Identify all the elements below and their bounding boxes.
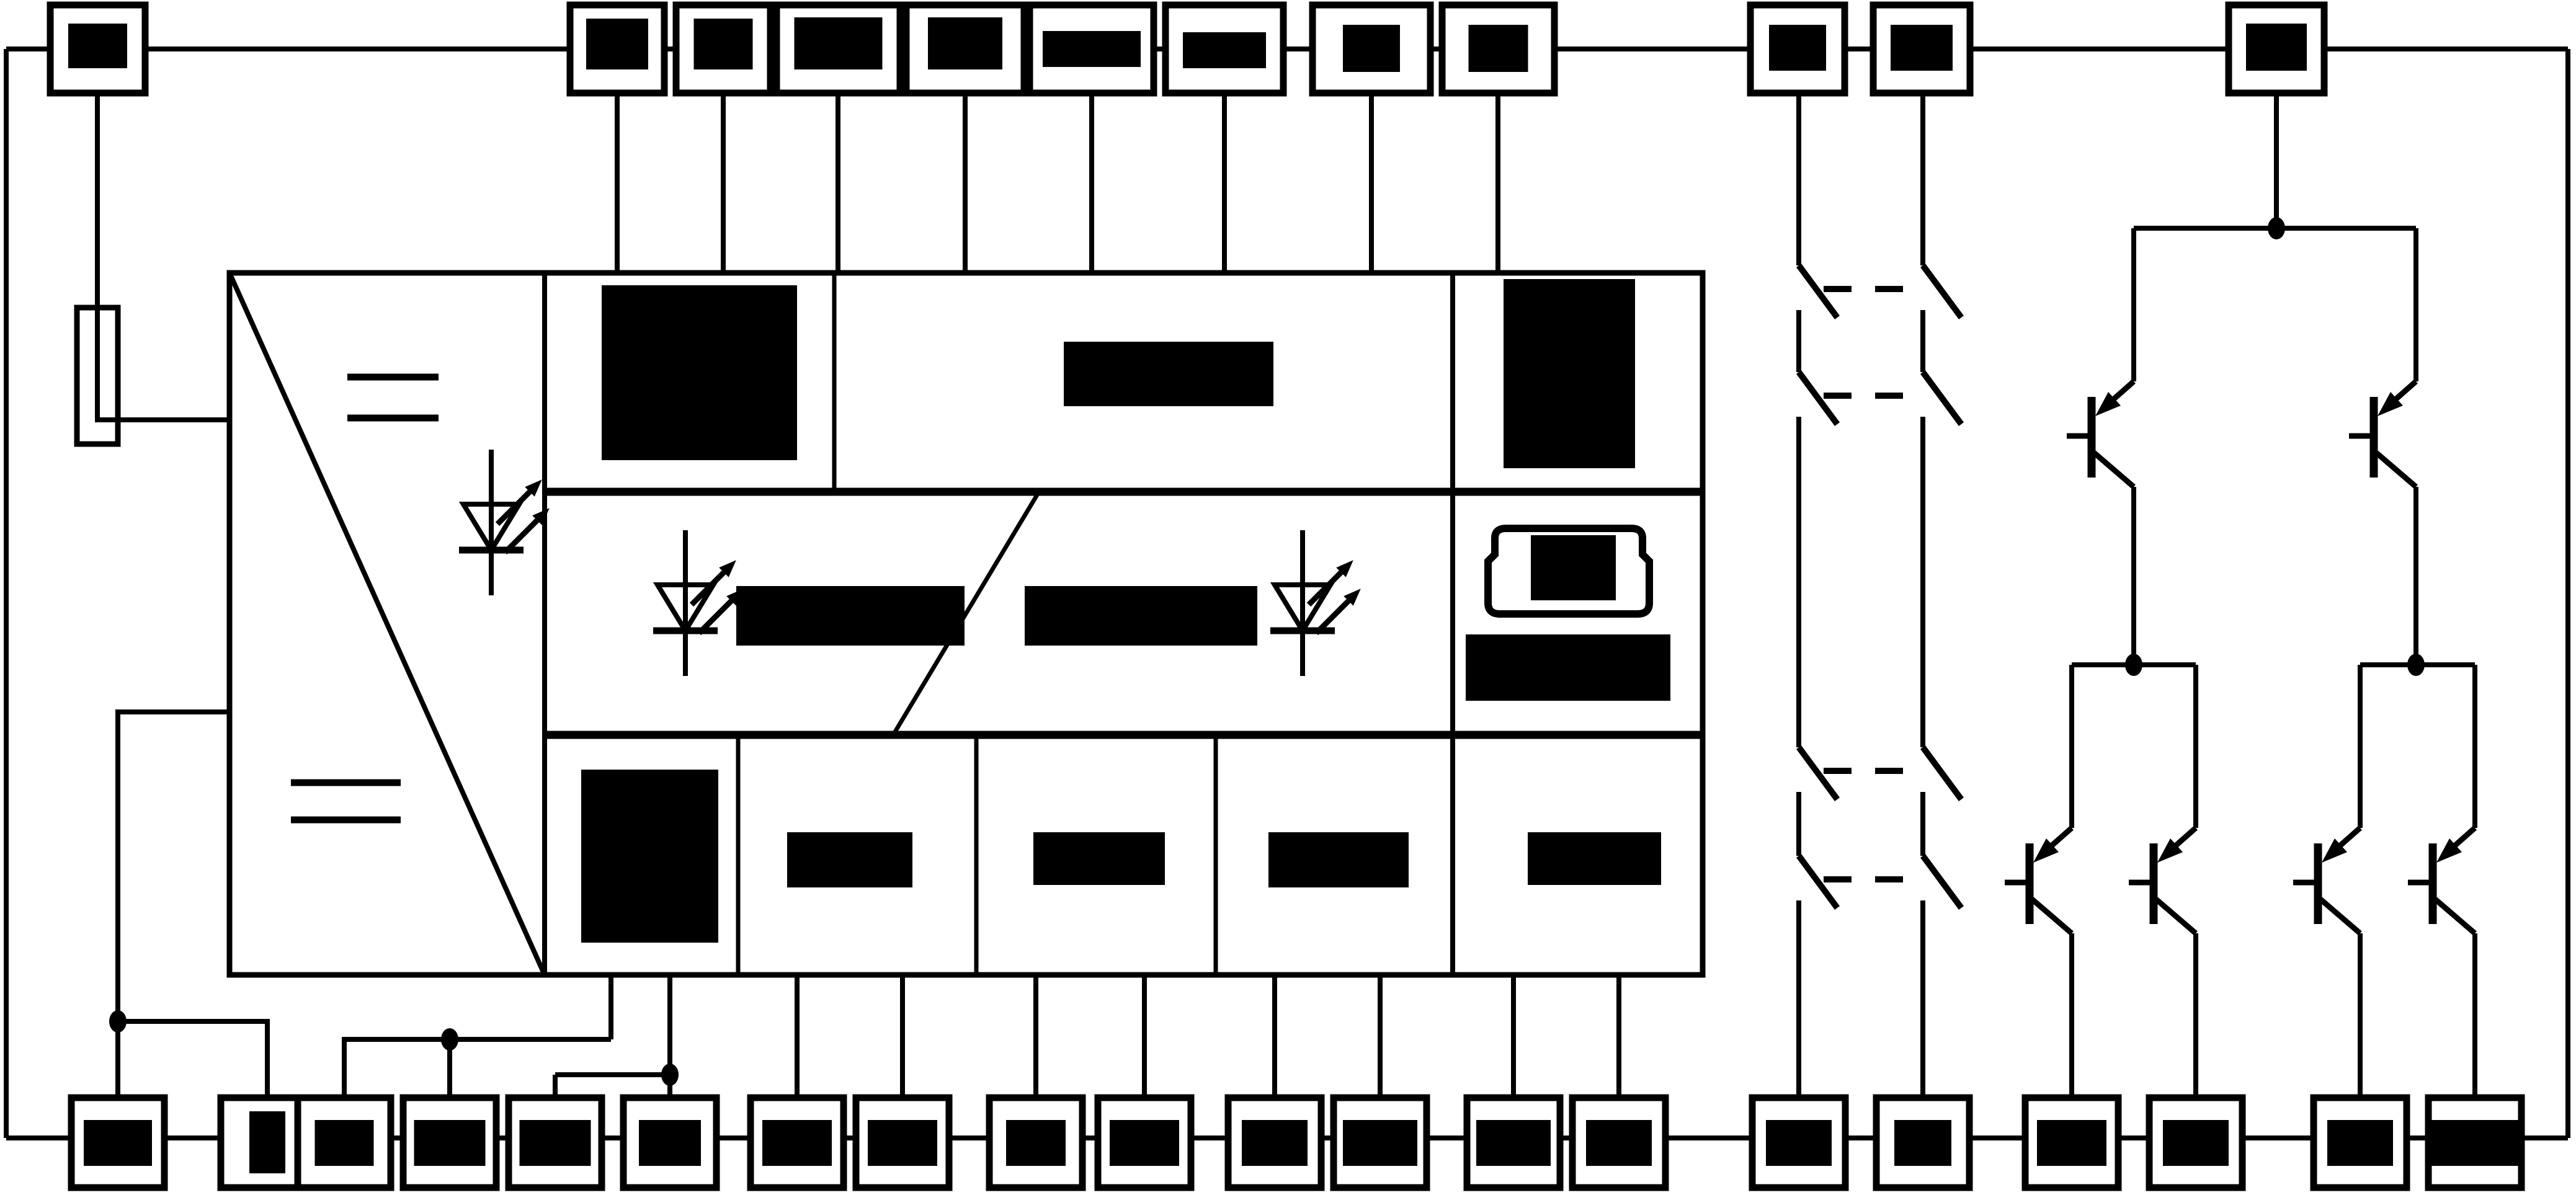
led-icon-converter: [459, 450, 550, 595]
pin-bottom-6-redacted-label: [639, 1120, 701, 1166]
pin-bottom-19-redacted-label: [2327, 1120, 2393, 1166]
pnp-transistor-bottom-4: [2408, 828, 2475, 933]
bottom-staggered-wires: [344, 975, 670, 1098]
pin-top-6-redacted-label: [1183, 32, 1266, 68]
switch-column-1: [1799, 93, 1837, 1098]
pin-bottom-10-redacted-label: [1110, 1120, 1179, 1166]
led-icon-middle-left: [653, 530, 744, 676]
junction-dot: [2407, 654, 2425, 676]
pin-top-1-redacted-label: [586, 19, 648, 69]
led-emission-arrow-1: [692, 572, 724, 605]
switch-column-2: [1923, 93, 1961, 1098]
block-diagram-canvas: [0, 0, 2576, 1200]
dc-symbol-upper: [347, 377, 439, 418]
pin-bottom-3-redacted-label: [315, 1120, 374, 1166]
label-middle-row-left: [736, 586, 965, 646]
pin-bottom-4-redacted-label: [414, 1120, 486, 1166]
pnp-transistor-bottom-2: [2129, 828, 2196, 933]
label-subblock-top-1: [602, 285, 797, 460]
transistor-collector: [2376, 453, 2416, 487]
pin-bottom-8-redacted-label: [868, 1120, 937, 1166]
pin-top-10-redacted-label: [1891, 25, 1953, 71]
label-bottom-col-4: [1268, 832, 1409, 887]
switch-blade: [1923, 265, 1961, 318]
top-pin-drop-wires: [617, 93, 1498, 273]
label-bottom-col-3: [1033, 832, 1165, 885]
led-emission-arrow-1: [497, 492, 530, 524]
pnp-transistor-bottom-3: [2293, 828, 2360, 933]
switch-blade: [1923, 856, 1961, 908]
transistor-icons-layer: [2005, 381, 2475, 933]
pin-top-8-redacted-label: [1469, 25, 1528, 72]
ganged-switch-icons: [1799, 93, 1961, 1098]
label-right-column-middle: [1466, 634, 1670, 701]
transistor-emitter: [2113, 381, 2134, 400]
pin-top-5-redacted-label: [1043, 31, 1141, 67]
pin-bottom-15-redacted-label: [1766, 1120, 1832, 1166]
transistor-emitter: [2175, 828, 2196, 847]
switch-blade: [1923, 747, 1961, 799]
pin-boxes-layer: [50, 5, 2521, 1188]
main-block-group: [230, 273, 1703, 975]
transistor-collector: [2032, 899, 2072, 933]
bottom-drop-wires: [797, 975, 1619, 1098]
pin-bottom-2-redacted-label: [249, 1111, 285, 1173]
transistor-collector: [2156, 899, 2196, 933]
pin-bottom-17-redacted-label: [2037, 1120, 2106, 1166]
pin-bottom-13-redacted-label: [1476, 1120, 1551, 1166]
pin-bottom-14-redacted-label: [1586, 1120, 1652, 1166]
label-bottom-col-1: [581, 770, 718, 943]
junction-dot: [109, 1010, 127, 1033]
pin-top-left-corner-redacted-label: [68, 24, 127, 68]
label-chip-icon-inner: [1531, 535, 1616, 600]
pin-bottom-11-redacted-label: [1242, 1120, 1308, 1166]
label-middle-row-right: [1025, 586, 1257, 646]
junction-dot: [2125, 654, 2142, 676]
pin-bottom-20-redacted-label: [2431, 1120, 2518, 1166]
pin-bottom-7-redacted-label: [762, 1120, 832, 1166]
pin-top-11-redacted-label: [2246, 24, 2307, 71]
transistor-collector: [2094, 453, 2134, 487]
switch-blade: [1923, 372, 1961, 424]
redacted-labels-layer: [68, 17, 2518, 1173]
label-subblock-top-2: [1064, 342, 1273, 406]
junction-dot: [661, 1064, 679, 1086]
pin-top-2-redacted-label: [694, 19, 753, 69]
pnp-transistor-bottom-1: [2005, 828, 2072, 933]
transistor-emitter: [2339, 828, 2360, 847]
pin-bottom-1-redacted-label: [84, 1120, 152, 1166]
junction-dot: [2268, 217, 2285, 239]
label-bottom-col-5: [1528, 832, 1661, 885]
junction-dot: [441, 1028, 458, 1051]
transistor-emitter: [2454, 828, 2475, 847]
pin-top-7-redacted-label: [1343, 25, 1400, 72]
diagram-page: [0, 0, 2576, 1200]
led-emission-arrow-1: [1309, 572, 1341, 605]
main-block-outline: [230, 273, 1703, 975]
converter-return-wire: [118, 712, 267, 1098]
transistor-collector: [2320, 899, 2360, 933]
led-icon-middle-right: [1270, 530, 1361, 676]
pin-top-4-redacted-label: [928, 17, 1002, 69]
transistor-tree-wires: [2072, 93, 2475, 1098]
transistor-collector: [2435, 899, 2475, 933]
label-bottom-col-2: [787, 832, 912, 887]
transistor-emitter: [2051, 828, 2072, 847]
pin-bottom-9-redacted-label: [1006, 1120, 1066, 1166]
pin-bottom-16-redacted-label: [1894, 1120, 1951, 1166]
pin-bottom-5-redacted-label: [520, 1120, 591, 1166]
dc-symbol-lower: [291, 783, 401, 820]
pnp-transistor-top-right: [2349, 381, 2416, 487]
transistor-emitter: [2395, 381, 2416, 400]
pin-top-3-redacted-label: [795, 17, 883, 69]
label-right-column-top: [1504, 279, 1635, 468]
pnp-transistor-top-left: [2067, 381, 2134, 487]
pin-bottom-12-redacted-label: [1343, 1120, 1417, 1166]
pin-top-9-redacted-label: [1769, 25, 1826, 71]
pin-bottom-18-redacted-label: [2163, 1120, 2229, 1166]
